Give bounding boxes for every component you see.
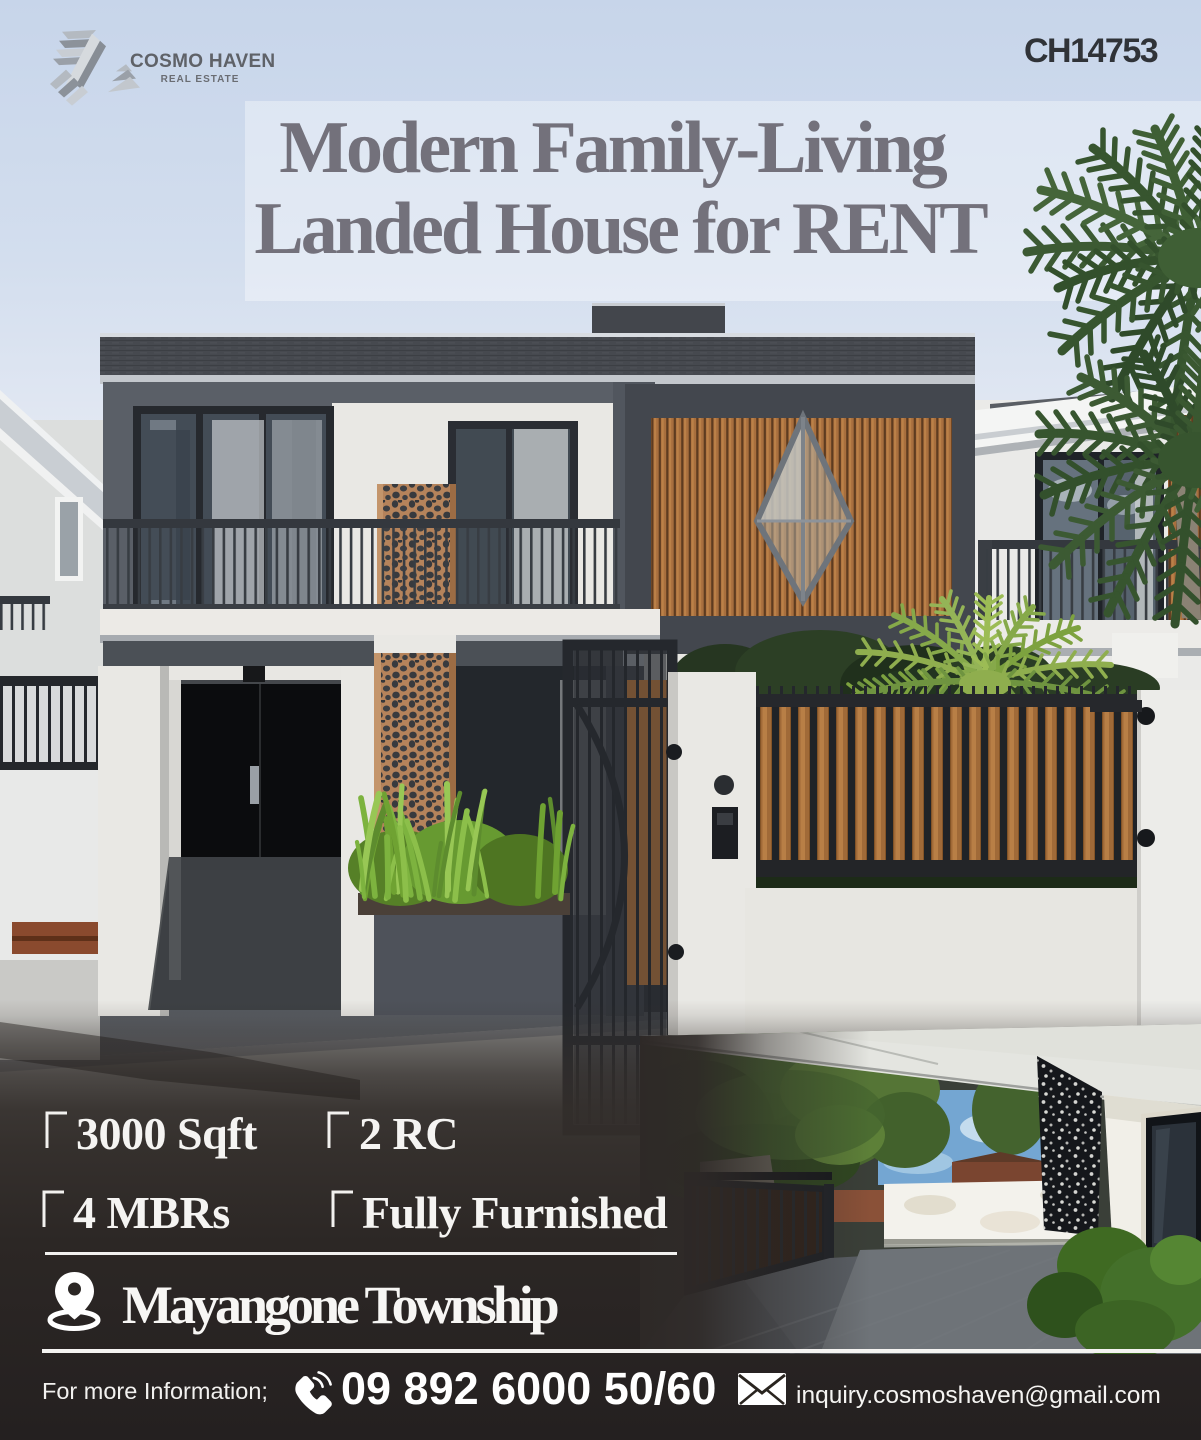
svg-text:Fully Furnished: Fully Furnished	[362, 1187, 668, 1238]
svg-text:For more Information;: For more Information;	[42, 1378, 268, 1404]
svg-text:CH14753: CH14753	[1024, 32, 1158, 70]
svg-text:Landed House for RENT: Landed House for RENT	[254, 188, 988, 270]
svg-text:4 MBRs: 4 MBRs	[73, 1187, 230, 1238]
svg-text:inquiry.cosmoshaven@gmail.com: inquiry.cosmoshaven@gmail.com	[796, 1382, 1161, 1409]
svg-text:09 892 6000 50/60: 09 892 6000 50/60	[341, 1363, 716, 1414]
svg-text:Mayangone Township: Mayangone Township	[122, 1275, 558, 1335]
svg-text:REAL ESTATE: REAL ESTATE	[161, 74, 240, 85]
svg-text:3000 Sqft: 3000 Sqft	[76, 1108, 258, 1159]
svg-text:2 RC: 2 RC	[359, 1108, 458, 1159]
svg-text:Modern Family-Living: Modern Family-Living	[279, 107, 948, 189]
svg-text:COSMO HAVEN: COSMO HAVEN	[130, 51, 275, 72]
